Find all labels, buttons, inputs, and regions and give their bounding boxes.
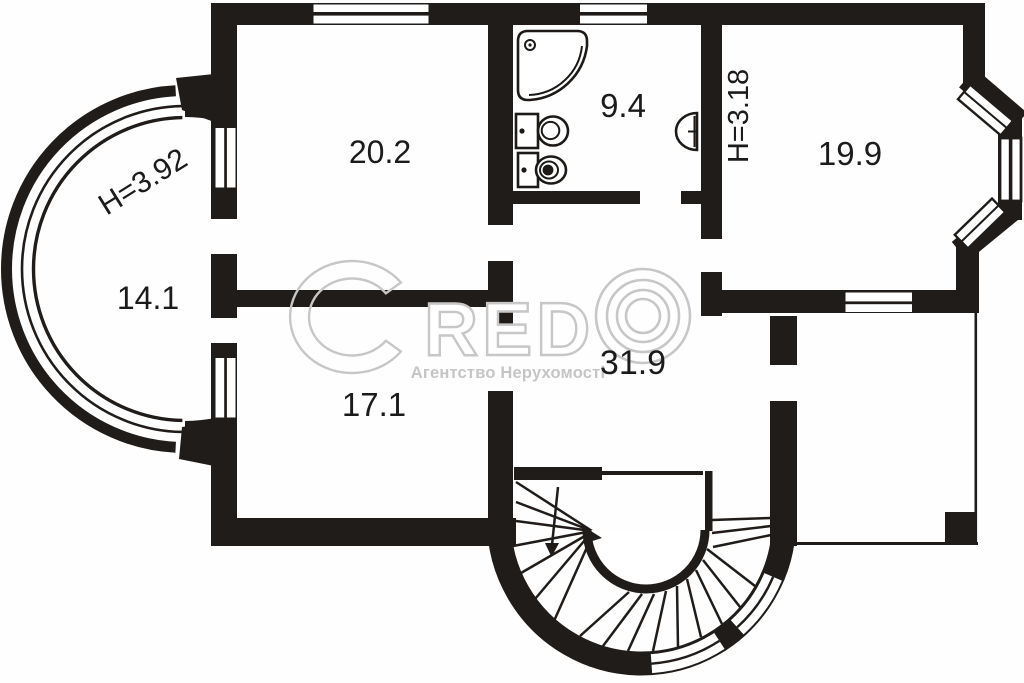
svg-text:H=3.18: H=3.18 — [723, 69, 755, 163]
svg-text:9.4: 9.4 — [600, 87, 646, 124]
svg-text:17.1: 17.1 — [342, 386, 406, 423]
svg-text:14.1: 14.1 — [117, 280, 179, 316]
svg-text:19.9: 19.9 — [818, 135, 882, 172]
svg-text:Агентство Нерухомості: Агентство Нерухомості — [411, 364, 606, 382]
svg-text:31.9: 31.9 — [600, 344, 666, 382]
svg-text:RED: RED — [424, 287, 594, 371]
svg-text:20.2: 20.2 — [349, 134, 411, 170]
